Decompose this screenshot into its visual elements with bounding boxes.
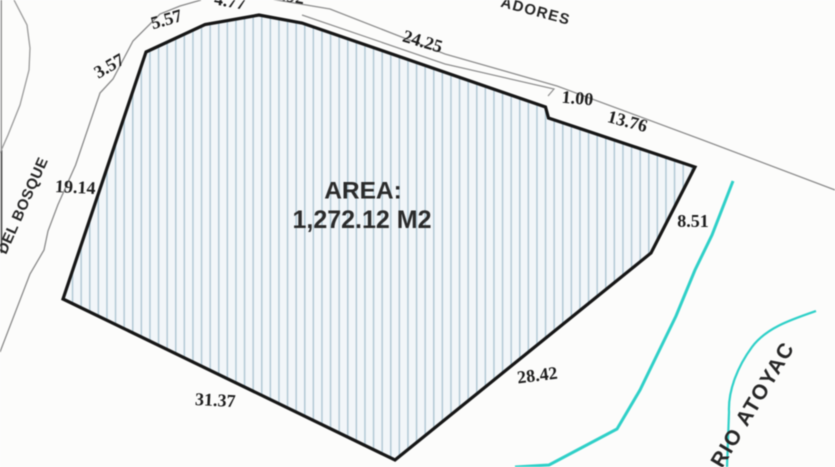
svg-text:AREA:: AREA: (324, 178, 402, 205)
svg-text:19.14: 19.14 (55, 176, 96, 198)
svg-text:8.51: 8.51 (677, 211, 709, 231)
svg-text:31.37: 31.37 (195, 389, 236, 411)
svg-text:1,272.12 M2: 1,272.12 M2 (293, 206, 432, 234)
svg-text:1.00: 1.00 (561, 87, 594, 110)
